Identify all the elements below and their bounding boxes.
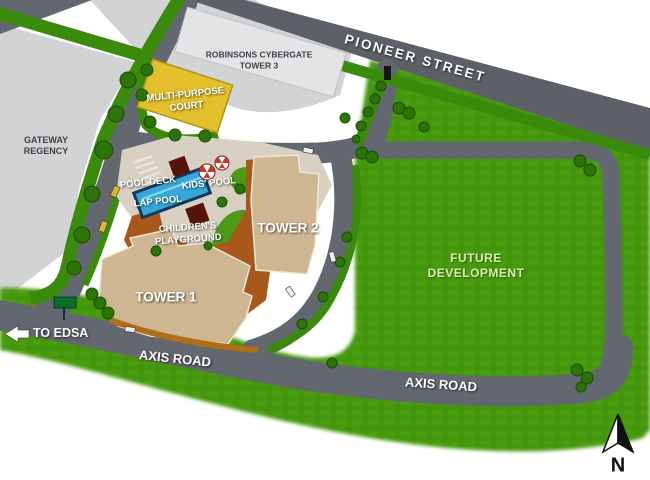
entrance-gate	[384, 66, 391, 80]
tower-2-building	[251, 155, 319, 274]
site-plan-map: PIONEER STREET ROBINSONS CYBERGATE TOWER…	[0, 0, 650, 480]
umbrella-icon	[199, 164, 215, 180]
umbrella-icon	[215, 156, 229, 170]
site-plan-canvas	[0, 0, 650, 480]
edsa-road-sign	[54, 297, 76, 308]
